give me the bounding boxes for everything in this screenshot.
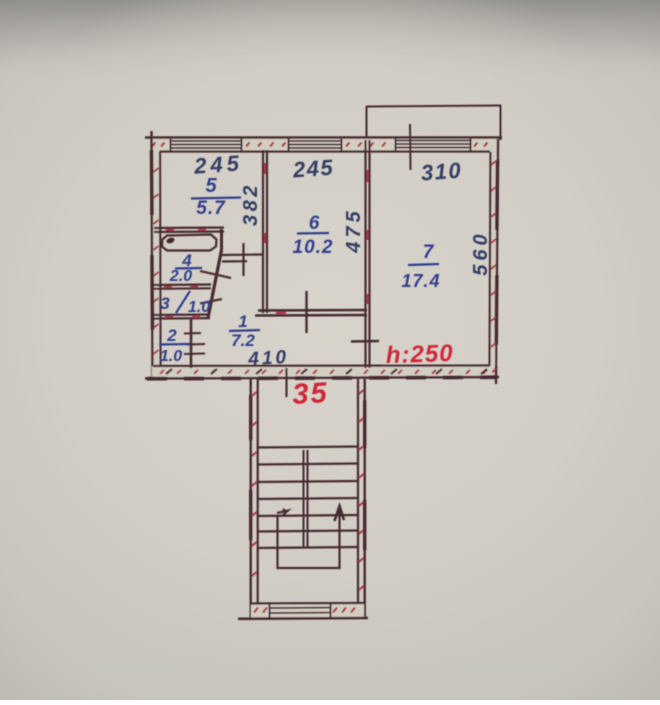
svg-text:310: 310 (420, 158, 463, 186)
svg-text:17.4: 17.4 (401, 271, 440, 291)
svg-text:6: 6 (309, 213, 320, 234)
svg-text:5: 5 (205, 175, 217, 197)
svg-text:3: 3 (160, 294, 170, 313)
svg-text:475: 475 (343, 207, 365, 253)
svg-text:2: 2 (166, 326, 177, 345)
svg-text:1: 1 (238, 312, 247, 331)
svg-text:7: 7 (423, 242, 435, 263)
svg-text:245: 245 (192, 150, 243, 178)
svg-text:1.0: 1.0 (160, 348, 182, 365)
svg-text:245: 245 (291, 155, 335, 183)
svg-text:382: 382 (240, 182, 262, 226)
svg-text:2.0: 2.0 (169, 268, 192, 285)
svg-text:410: 410 (247, 347, 290, 370)
svg-text:5.7: 5.7 (196, 198, 226, 219)
svg-text:h:250: h:250 (385, 340, 454, 369)
svg-text:10.2: 10.2 (293, 237, 334, 258)
svg-text:560: 560 (470, 230, 492, 275)
svg-text:35: 35 (292, 377, 330, 411)
svg-text:7.2: 7.2 (231, 331, 255, 350)
svg-text:1.0: 1.0 (188, 299, 210, 316)
